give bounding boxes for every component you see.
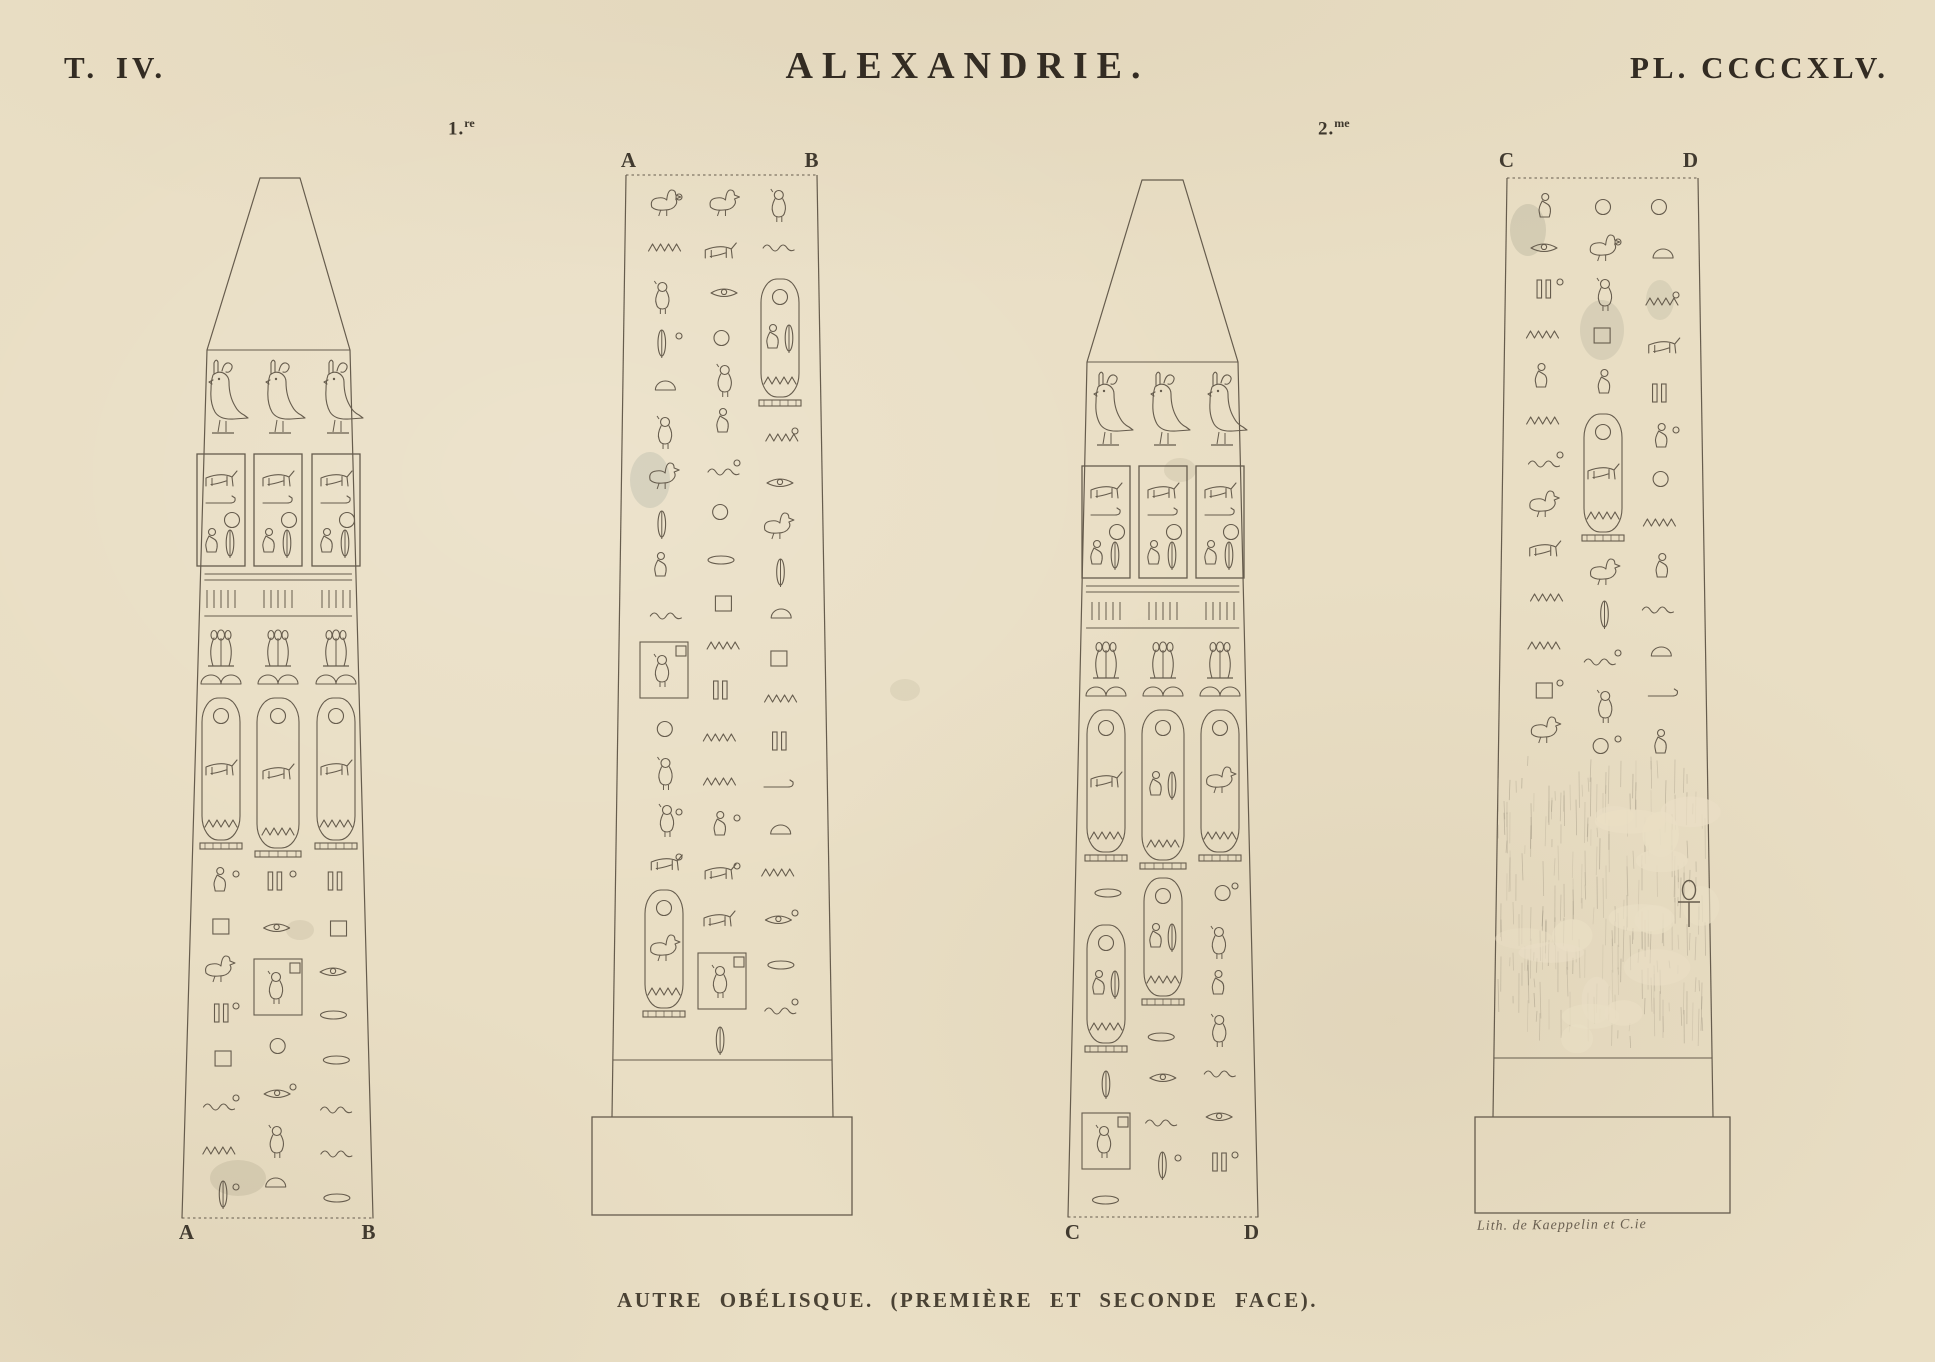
obelisk4-letter-c: C — [1499, 148, 1515, 173]
obelisk-engravings — [0, 0, 1935, 1362]
obelisk3-letter-c: C — [1065, 1220, 1081, 1245]
first-face-label: 1.re — [448, 116, 475, 140]
second-face-label: 2.me — [1318, 116, 1350, 140]
plate-caption: AUTRE OBÉLISQUE. (PREMIÈRE ET SECONDE FA… — [617, 1288, 1318, 1313]
tome-number: T. IV. — [64, 50, 166, 86]
plate-title: ALEXANDRIE. — [786, 44, 1150, 88]
obelisk1-letter-b: B — [361, 1220, 376, 1245]
second-face-sup: me — [1334, 116, 1349, 130]
lithographer-credit: Lith. de Kaeppelin et C.ie — [1477, 1217, 1647, 1235]
obelisk2-letter-b: B — [804, 148, 819, 173]
engraving-plate-page: T. IV. ALEXANDRIE. PL. CCCCXLV. 1.re 2.m… — [0, 0, 1935, 1362]
first-face-sup: re — [464, 116, 474, 130]
second-face-base: 2. — [1318, 118, 1334, 139]
plate-number: PL. CCCCXLV. — [1630, 50, 1889, 86]
obelisk3-letter-d: D — [1244, 1220, 1260, 1245]
obelisk2-letter-a: A — [621, 148, 637, 173]
first-face-base: 1. — [448, 118, 464, 139]
obelisk1-letter-a: A — [179, 1220, 195, 1245]
obelisk-line-art — [0, 0, 1935, 1362]
obelisk4-letter-d: D — [1683, 148, 1699, 173]
